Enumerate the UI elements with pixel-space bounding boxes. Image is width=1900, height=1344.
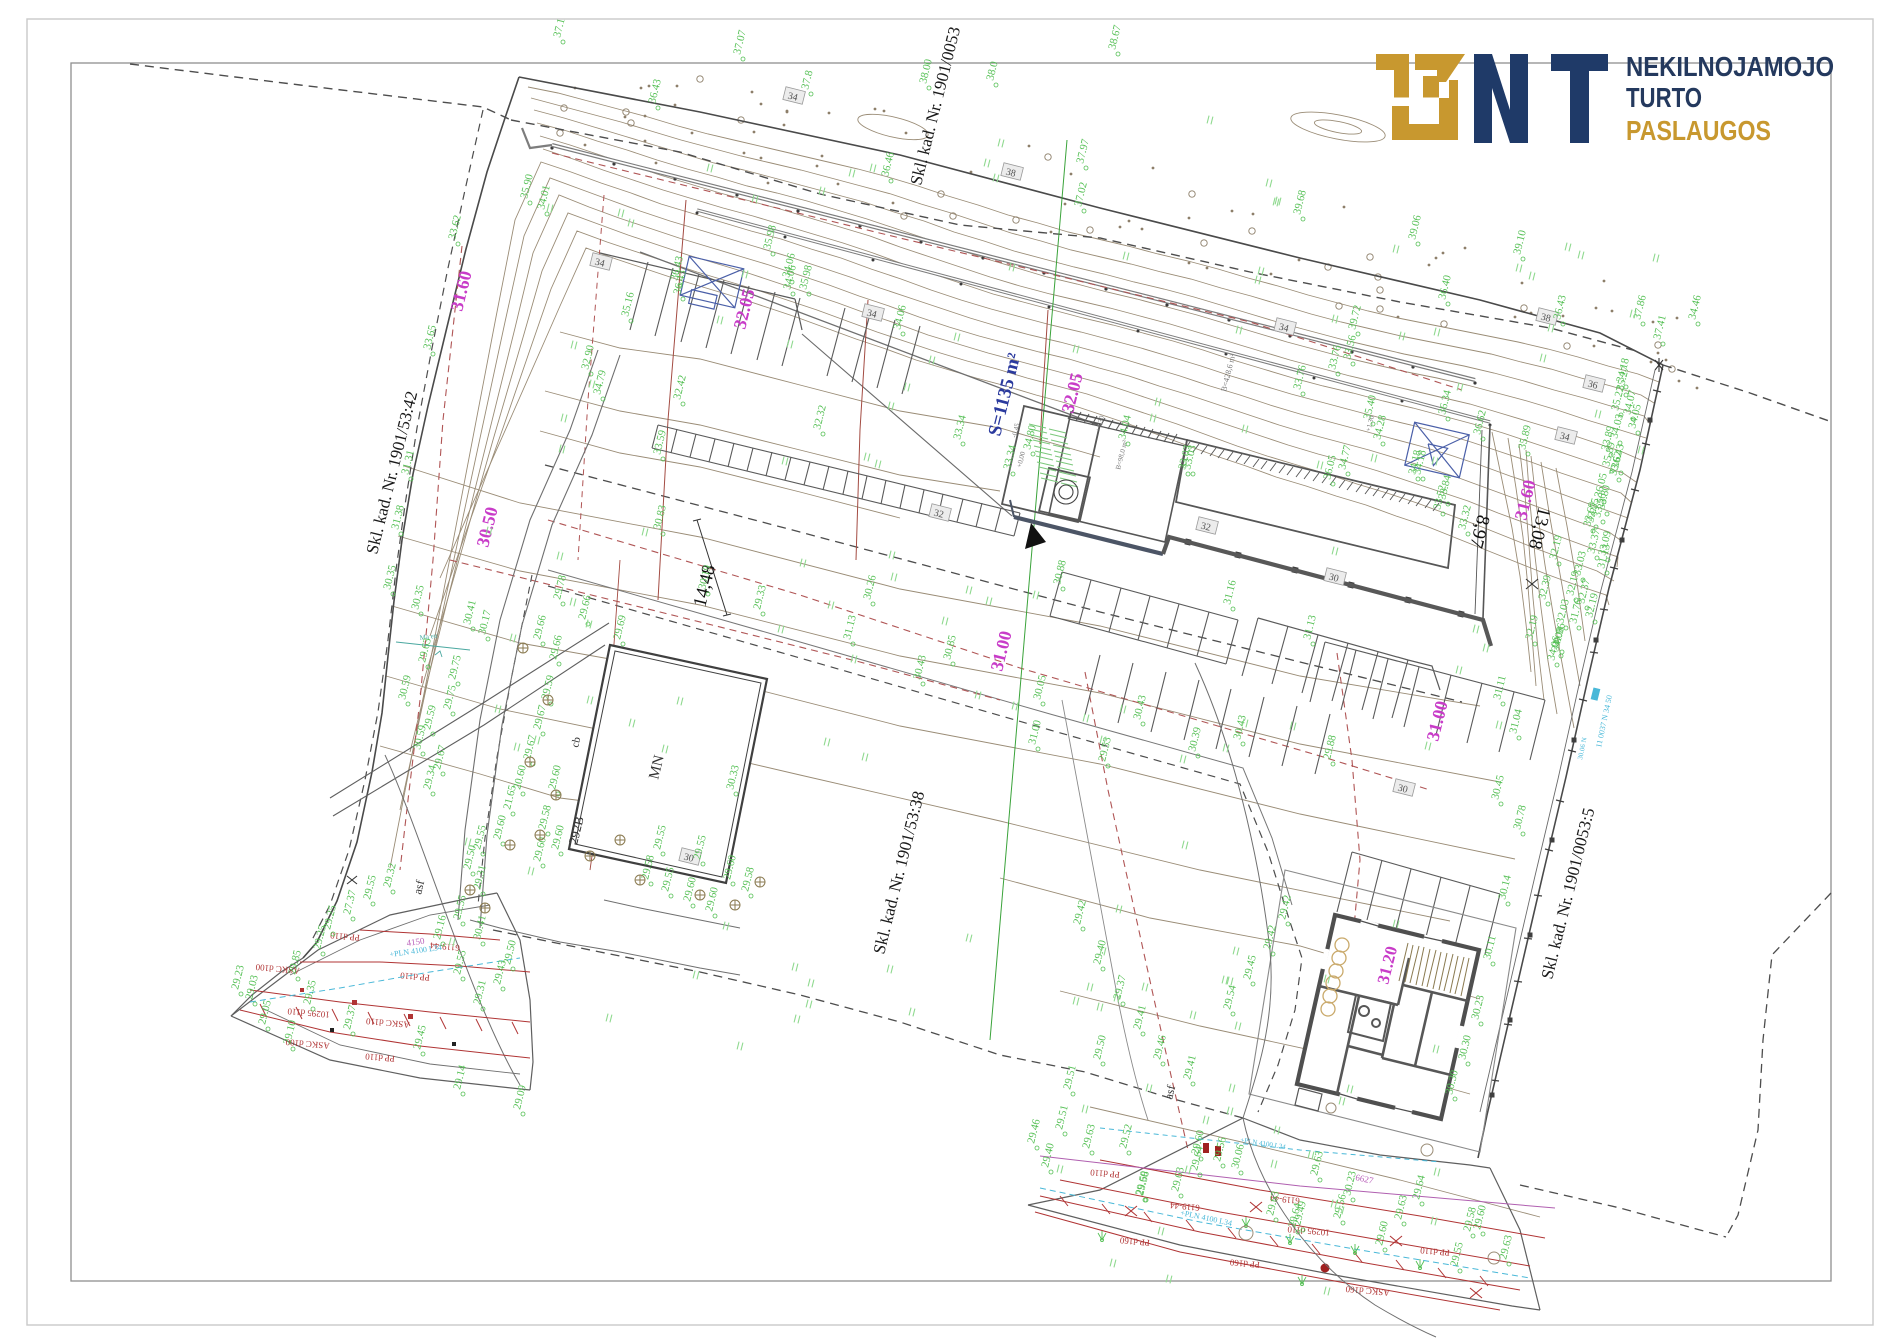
svg-text:PASLAUGOS: PASLAUGOS [1626,115,1771,146]
svg-text:TURTO: TURTO [1626,82,1702,113]
svg-text:NEKILNOJAMOJO: NEKILNOJAMOJO [1626,51,1834,82]
